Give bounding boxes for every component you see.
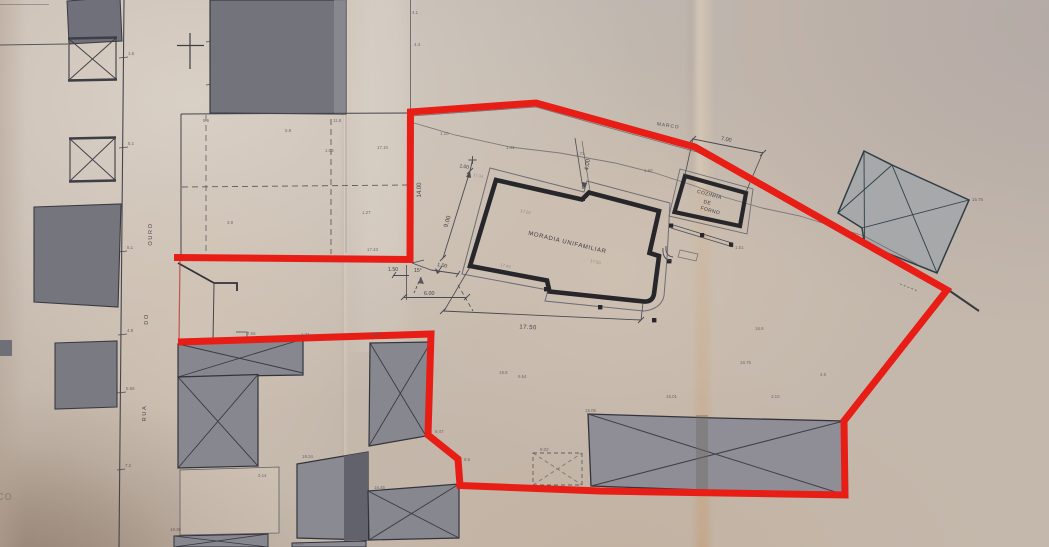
svg-text:5.1: 5.1 xyxy=(128,141,135,146)
svg-text:1.10: 1.10 xyxy=(440,131,449,136)
svg-text:1.50: 1.50 xyxy=(388,267,398,273)
svg-text:9.34: 9.34 xyxy=(295,541,304,546)
svg-text:3.14: 3.14 xyxy=(258,473,267,478)
svg-text:4.8: 4.8 xyxy=(127,328,134,333)
svg-text:17.43: 17.43 xyxy=(367,247,379,252)
svg-text:15.05: 15.05 xyxy=(585,408,597,413)
svg-text:1.71: 1.71 xyxy=(576,151,585,156)
svg-text:DO: DO xyxy=(144,313,150,325)
svg-text:5.8: 5.8 xyxy=(285,128,292,133)
svg-text:1.51: 1.51 xyxy=(735,245,744,250)
svg-text:11.8: 11.8 xyxy=(333,118,342,123)
svg-text:1.03: 1.03 xyxy=(325,148,334,153)
svg-text:18.75: 18.75 xyxy=(740,360,752,365)
svg-text:16.45: 16.45 xyxy=(374,485,386,490)
svg-text:9.54: 9.54 xyxy=(518,374,527,379)
svg-text:1.71: 1.71 xyxy=(301,332,310,337)
svg-text:17.10: 17.10 xyxy=(377,145,389,150)
svg-text:1.41: 1.41 xyxy=(506,145,515,150)
svg-text:7.56: 7.56 xyxy=(247,331,256,336)
svg-text:OURO: OURO xyxy=(148,222,154,245)
svg-text:5.1: 5.1 xyxy=(127,245,134,250)
svg-text:RUA: RUA xyxy=(142,405,148,422)
svg-text:5.56: 5.56 xyxy=(126,386,135,391)
svg-text:1.60: 1.60 xyxy=(644,168,653,173)
svg-text:4.5: 4.5 xyxy=(820,372,827,377)
svg-text:19.8: 19.8 xyxy=(499,370,508,375)
svg-text:19.34: 19.34 xyxy=(302,454,314,459)
svg-text:1.6: 1.6 xyxy=(128,51,135,56)
svg-text:8.47: 8.47 xyxy=(435,429,444,434)
svg-text:3.9: 3.9 xyxy=(227,220,234,225)
svg-text:17.50: 17.50 xyxy=(519,325,537,332)
svg-text:8.6: 8.6 xyxy=(464,457,471,462)
svg-text:co: co xyxy=(0,488,13,503)
svg-text:18.02: 18.02 xyxy=(370,332,382,337)
svg-text:15.01: 15.01 xyxy=(666,394,678,399)
svg-text:18.30: 18.30 xyxy=(170,527,182,532)
svg-text:7.2: 7.2 xyxy=(125,463,132,468)
svg-text:15.75: 15.75 xyxy=(972,197,984,202)
svg-text:9.02: 9.02 xyxy=(540,447,549,452)
svg-text:1.27: 1.27 xyxy=(362,210,371,215)
svg-text:4.1: 4.1 xyxy=(412,10,419,15)
svg-text:5.6: 5.6 xyxy=(203,118,210,123)
svg-text:4.4: 4.4 xyxy=(414,42,421,47)
svg-text:14.00: 14.00 xyxy=(417,182,423,198)
svg-text:16.8: 16.8 xyxy=(755,326,764,331)
svg-text:15°: 15° xyxy=(414,268,422,274)
svg-text:3.10: 3.10 xyxy=(771,394,780,399)
svg-text:6.00: 6.00 xyxy=(424,291,435,297)
